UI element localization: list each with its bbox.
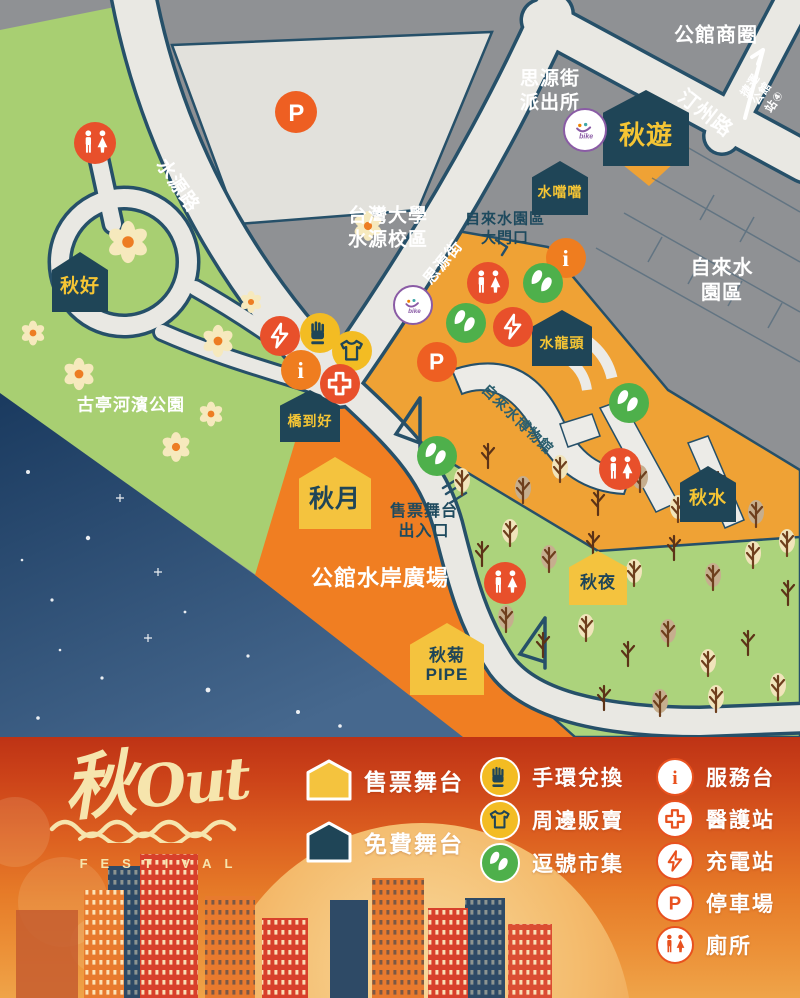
legend-item-house-ticket: 售票舞台 (306, 759, 464, 801)
legend-item-label: 醫護站 (706, 804, 775, 834)
comma-icon (480, 843, 520, 883)
stage-name: 秋遊 (619, 106, 673, 150)
legend-item-medical: 醫護站 (656, 800, 775, 838)
map-label-waterpark-gate: 自來水園區 大門口 (465, 210, 545, 248)
map-label-waterpark: 自來水園區 (683, 256, 761, 306)
legend-stage-types: 售票舞台 免費舞台 (306, 759, 464, 863)
legend-services: 手環兌換周邊販賣逗號市集 (480, 757, 624, 883)
legend-item-label: 服務台 (706, 762, 775, 792)
toilet-icon (599, 448, 641, 490)
map-label-gongguan-waterfront-plaza: 公館水岸廣場 (311, 564, 449, 592)
legend-item-comma: 逗號市集 (480, 843, 624, 883)
stage-name: 秋月 (309, 473, 361, 513)
map-label-guting-riverside-park: 古亭河濱公園 (77, 394, 185, 415)
legend-panel: 秋Out FESTIVAL 售票舞台 免費舞台 手環兌換周邊販賣逗號市集 i服務… (0, 737, 800, 998)
stage-name: 秋水 (689, 479, 727, 509)
ubike-icon: bike (563, 108, 607, 152)
stage-name: 橋到好 (288, 403, 333, 429)
legend-item-label: 免費舞台 (364, 825, 464, 859)
stage-name: 秋夜 (580, 563, 616, 592)
festival-logo-title: 秋Out (33, 737, 278, 827)
charging-icon (493, 307, 533, 347)
legend-facilities: i服務台醫護站充電站P停車場廁所 (656, 758, 775, 964)
medical-icon (320, 364, 360, 404)
parking-icon: P (656, 884, 694, 922)
site-map: 公館商圈思源街 派出所汀州路捷運公館站④水源路台灣大學 水源校區自來水園區 大門… (0, 0, 800, 737)
legend-item-label: 周邊販賣 (532, 805, 624, 835)
legend-item-info: i服務台 (656, 758, 775, 796)
house-ticket-icon (306, 759, 352, 801)
svg-text:bike: bike (408, 308, 421, 315)
legend-item-toilet: 廁所 (656, 926, 775, 964)
stage-name: 水噹噹 (538, 175, 583, 200)
legend-item-wristband: 手環兌換 (480, 757, 624, 797)
comma-icon (446, 303, 486, 343)
legend-item-tshirt: 周邊販賣 (480, 800, 624, 840)
legend-item-label: 充電站 (706, 846, 775, 876)
parking-icon: P (417, 342, 457, 382)
festival-logo: 秋Out FESTIVAL (36, 745, 276, 871)
toilet-icon (74, 122, 116, 164)
svg-text:i: i (563, 246, 570, 272)
logo-cjk-text: 秋 (60, 740, 139, 831)
toilet-icon (484, 562, 526, 604)
map-label-ntu-shuiyuan-campus: 台灣大學 水源校區 (348, 204, 428, 252)
comma-icon (417, 436, 457, 476)
parking-icon: P (275, 91, 317, 133)
tshirt-icon (480, 800, 520, 840)
medical-icon (656, 800, 694, 838)
stage-name: 秋好 (60, 267, 100, 298)
legend-item-label: 逗號市集 (532, 848, 624, 878)
stage-name: 秋菊 PIPE (426, 634, 469, 685)
ubike-icon: bike (393, 285, 433, 325)
svg-text:P: P (669, 893, 682, 914)
legend-item-label: 售票舞台 (364, 763, 464, 797)
festival-logo-subtitle: FESTIVAL (36, 856, 276, 871)
map-label-police-station: 思源街 派出所 (520, 67, 580, 115)
info-icon: i (281, 350, 321, 390)
festival-map-poster: 公館商圈思源街 派出所汀州路捷運公館站④水源路台灣大學 水源校區自來水園區 大門… (0, 0, 800, 998)
svg-text:P: P (288, 99, 304, 126)
legend-item-charging: 充電站 (656, 842, 775, 880)
map-label-ticket-stage-entrance: 售票舞台 出入口 (390, 502, 458, 542)
legend-item-label: 停車場 (706, 888, 775, 918)
legend-item-parking: P停車場 (656, 884, 775, 922)
logo-latin-text: Out (133, 744, 252, 822)
comma-icon (609, 383, 649, 423)
toilet-icon (656, 926, 694, 964)
map-label-gongguan-district: 公館商圈 (674, 24, 758, 49)
svg-text:P: P (429, 349, 444, 375)
stage-name: 水龍頭 (540, 325, 585, 351)
charging-icon (656, 842, 694, 880)
legend-item-house-free: 免費舞台 (306, 821, 464, 863)
svg-text:bike: bike (580, 134, 594, 141)
svg-text:i: i (298, 358, 305, 384)
legend-item-label: 廁所 (706, 930, 752, 960)
house-free-icon (306, 821, 352, 863)
svg-text:i: i (672, 768, 678, 789)
comma-icon (523, 263, 563, 303)
legend-item-label: 手環兌換 (532, 762, 624, 792)
wristband-icon (480, 757, 520, 797)
toilet-icon (467, 262, 509, 304)
info-icon: i (656, 758, 694, 796)
